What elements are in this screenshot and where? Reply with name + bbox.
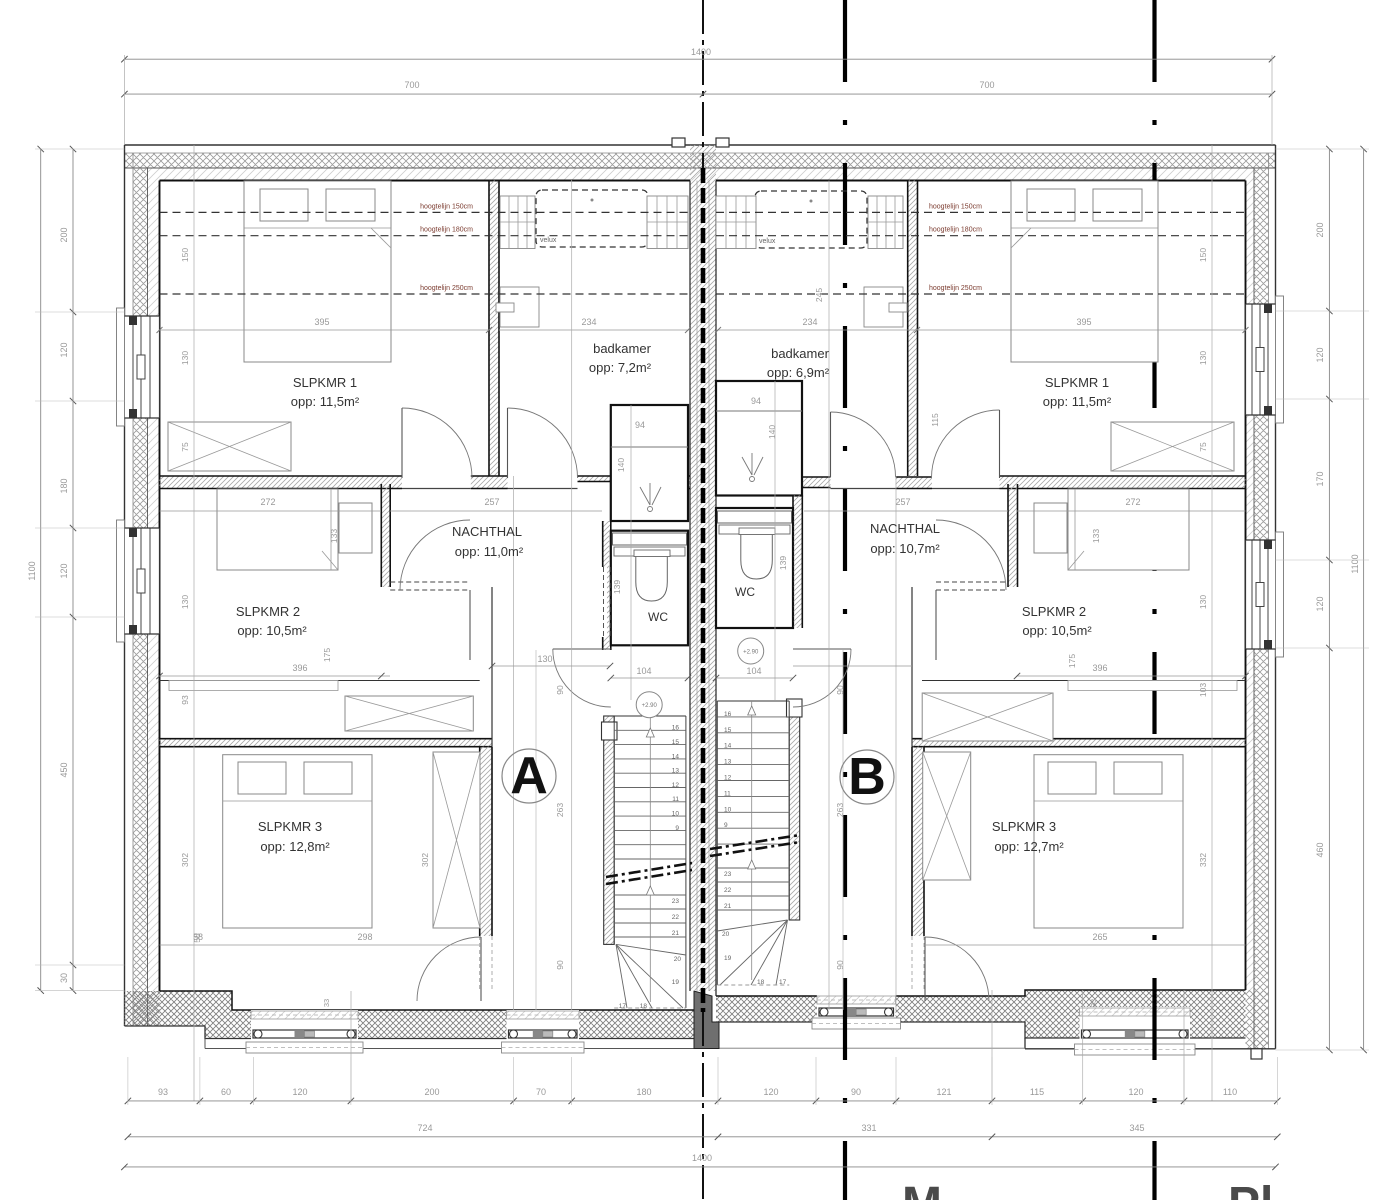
svg-text:15: 15	[672, 739, 680, 746]
svg-text:hoogtelijn 250cm: hoogtelijn 250cm	[420, 285, 473, 292]
svg-text:395: 395	[1076, 317, 1091, 327]
svg-text:90: 90	[555, 685, 565, 695]
svg-text:120: 120	[1315, 347, 1325, 362]
svg-text:21: 21	[672, 930, 680, 937]
svg-text:396: 396	[1092, 663, 1107, 673]
svg-text:60: 60	[221, 1087, 231, 1097]
svg-text:133: 133	[329, 529, 339, 543]
svg-text:B: B	[848, 748, 886, 806]
svg-text:150: 150	[1198, 248, 1208, 262]
svg-text:WC: WC	[648, 610, 668, 624]
svg-text:75: 75	[180, 442, 190, 452]
svg-text:opp: 10,5m²: opp: 10,5m²	[1022, 623, 1092, 638]
svg-text:opp: 11,5m²: opp: 11,5m²	[1043, 394, 1112, 409]
svg-text:Pl: Pl	[1228, 1178, 1273, 1200]
svg-text:1400: 1400	[692, 1153, 712, 1163]
svg-text:139: 139	[612, 580, 622, 594]
svg-text:11: 11	[724, 790, 731, 797]
svg-text:10: 10	[672, 811, 680, 818]
svg-text:1100: 1100	[27, 561, 37, 580]
svg-text:104: 104	[636, 666, 651, 676]
svg-text:200: 200	[424, 1087, 439, 1097]
svg-text:20: 20	[722, 931, 730, 938]
svg-text:115: 115	[930, 413, 940, 427]
svg-text:130: 130	[180, 595, 190, 609]
svg-text:hoogtelijn 150cm: hoogtelijn 150cm	[420, 203, 473, 210]
svg-text:93: 93	[180, 695, 190, 705]
svg-text:23: 23	[724, 871, 732, 878]
svg-text:1400: 1400	[691, 47, 711, 57]
svg-text:14: 14	[724, 743, 732, 750]
svg-text:265: 265	[1092, 932, 1107, 942]
svg-text:700: 700	[979, 80, 994, 90]
svg-text:257: 257	[895, 497, 910, 507]
svg-text:90: 90	[835, 685, 845, 695]
svg-text:19: 19	[672, 979, 680, 986]
svg-text:17: 17	[619, 1003, 627, 1010]
svg-text:110: 110	[1223, 1087, 1237, 1097]
svg-text:22: 22	[672, 914, 680, 921]
svg-text:12: 12	[672, 782, 680, 789]
svg-text:175: 175	[1067, 654, 1077, 668]
svg-text:opp: 10,5m²: opp: 10,5m²	[237, 623, 307, 638]
svg-text:badkamer: badkamer	[771, 346, 829, 361]
svg-text:33: 33	[322, 999, 331, 1007]
svg-text:13: 13	[672, 768, 680, 775]
svg-text:SLPKMR 3: SLPKMR 3	[258, 819, 322, 834]
svg-text:hoogtelijn 250cm: hoogtelijn 250cm	[929, 285, 982, 292]
svg-text:18: 18	[640, 1003, 648, 1010]
svg-text:120: 120	[763, 1087, 778, 1097]
svg-text:120: 120	[59, 342, 69, 357]
svg-text:120: 120	[292, 1087, 307, 1097]
svg-text:93: 93	[158, 1087, 168, 1097]
svg-text:180: 180	[59, 478, 69, 493]
svg-text:302: 302	[420, 853, 430, 867]
svg-text:130: 130	[180, 351, 190, 365]
svg-text:10: 10	[724, 806, 732, 813]
svg-text:90: 90	[555, 960, 565, 970]
svg-text:hoogtelijn 150cm: hoogtelijn 150cm	[929, 203, 982, 210]
svg-text:velux: velux	[759, 238, 776, 245]
svg-text:70: 70	[536, 1087, 546, 1097]
svg-text:272: 272	[1125, 497, 1140, 507]
svg-text:94: 94	[751, 396, 761, 406]
svg-text:272: 272	[260, 497, 275, 507]
svg-text:120: 120	[1128, 1087, 1143, 1097]
svg-text:13: 13	[724, 759, 732, 766]
svg-text:103: 103	[1198, 683, 1208, 697]
svg-text:115: 115	[1030, 1087, 1044, 1097]
svg-text:234: 234	[802, 317, 817, 327]
svg-text:19: 19	[724, 955, 732, 962]
svg-text:23: 23	[672, 898, 680, 905]
svg-text:90: 90	[835, 960, 845, 970]
svg-text:121: 121	[936, 1087, 951, 1097]
svg-text:opp: 6,9m²: opp: 6,9m²	[767, 365, 830, 380]
svg-text:opp: 11,5m²: opp: 11,5m²	[291, 394, 360, 409]
svg-text:332: 332	[1198, 853, 1208, 867]
svg-text:opp: 11,0m²: opp: 11,0m²	[455, 544, 524, 559]
svg-text:170: 170	[1315, 471, 1325, 486]
svg-text:opp: 12,7m²: opp: 12,7m²	[994, 839, 1064, 854]
svg-text:16: 16	[672, 725, 680, 732]
svg-text:16: 16	[724, 711, 732, 718]
svg-text:245: 245	[814, 288, 824, 302]
svg-text:263: 263	[835, 803, 845, 817]
svg-text:700: 700	[404, 80, 419, 90]
svg-text:130: 130	[1198, 595, 1208, 609]
svg-text:302: 302	[180, 853, 190, 867]
svg-text:18: 18	[757, 979, 765, 986]
svg-text:139: 139	[778, 556, 788, 570]
svg-text:velux: velux	[540, 237, 557, 244]
svg-text:94: 94	[635, 420, 645, 430]
svg-text:460: 460	[1315, 842, 1325, 857]
svg-text:14: 14	[672, 753, 680, 760]
svg-text:opp: 7,2m²: opp: 7,2m²	[589, 360, 652, 375]
svg-text:SLPKMR 1: SLPKMR 1	[1045, 375, 1109, 390]
svg-text:395: 395	[314, 317, 329, 327]
svg-text:22: 22	[724, 887, 732, 894]
svg-text:11: 11	[672, 796, 679, 803]
svg-text:9: 9	[724, 822, 728, 829]
svg-text:1100: 1100	[1350, 554, 1360, 573]
svg-text:hoogtelijn 180cm: hoogtelijn 180cm	[929, 227, 982, 234]
svg-text:200: 200	[1315, 222, 1325, 237]
svg-text:298: 298	[357, 932, 372, 942]
svg-text:17: 17	[779, 979, 787, 986]
svg-text:200: 200	[59, 227, 69, 242]
svg-text:130: 130	[537, 654, 552, 664]
svg-text:WC: WC	[735, 585, 755, 599]
svg-text:badkamer: badkamer	[593, 341, 651, 356]
svg-text:NACHTHAL: NACHTHAL	[870, 521, 940, 536]
svg-text:9: 9	[675, 825, 679, 832]
svg-text:234: 234	[581, 317, 596, 327]
svg-text:A: A	[510, 747, 548, 805]
svg-text:396: 396	[292, 663, 307, 673]
svg-text:331: 331	[861, 1123, 876, 1133]
svg-text:15: 15	[724, 727, 732, 734]
svg-text:75: 75	[1198, 442, 1208, 452]
svg-text:21: 21	[724, 903, 732, 910]
svg-text:SLPKMR 2: SLPKMR 2	[1022, 604, 1086, 619]
svg-text:opp: 10,7m²: opp: 10,7m²	[870, 541, 940, 556]
svg-text:450: 450	[59, 762, 69, 777]
svg-text:12: 12	[724, 775, 732, 782]
svg-text:263: 263	[555, 803, 565, 817]
svg-text:SLPKMR 1: SLPKMR 1	[293, 375, 357, 390]
svg-text:hoogtelijn 180cm: hoogtelijn 180cm	[420, 227, 473, 234]
svg-text:140: 140	[767, 425, 777, 439]
svg-text:30: 30	[59, 973, 69, 983]
svg-text:SLPKMR 3: SLPKMR 3	[992, 819, 1056, 834]
svg-text:+2.90: +2.90	[642, 703, 658, 709]
svg-text:90: 90	[851, 1087, 861, 1097]
svg-text:140: 140	[616, 458, 626, 472]
svg-text:130: 130	[1198, 351, 1208, 365]
svg-text:150: 150	[180, 248, 190, 262]
svg-text:20: 20	[674, 956, 682, 963]
svg-text:724: 724	[417, 1123, 432, 1133]
svg-text:180: 180	[636, 1087, 651, 1097]
svg-text:58: 58	[192, 933, 202, 943]
svg-text:175: 175	[322, 648, 332, 662]
svg-text:120: 120	[1315, 596, 1325, 611]
svg-text:M: M	[902, 1178, 942, 1200]
svg-text:opp: 12,8m²: opp: 12,8m²	[260, 839, 330, 854]
svg-text:SLPKMR 2: SLPKMR 2	[236, 604, 300, 619]
svg-text:133: 133	[1091, 529, 1101, 543]
svg-text:257: 257	[484, 497, 499, 507]
svg-text:345: 345	[1129, 1123, 1144, 1133]
svg-text:104: 104	[746, 666, 761, 676]
svg-text:+2.90: +2.90	[743, 650, 759, 656]
svg-text:NACHTHAL: NACHTHAL	[452, 524, 522, 539]
svg-text:33: 33	[1089, 999, 1098, 1007]
svg-text:120: 120	[59, 563, 69, 578]
